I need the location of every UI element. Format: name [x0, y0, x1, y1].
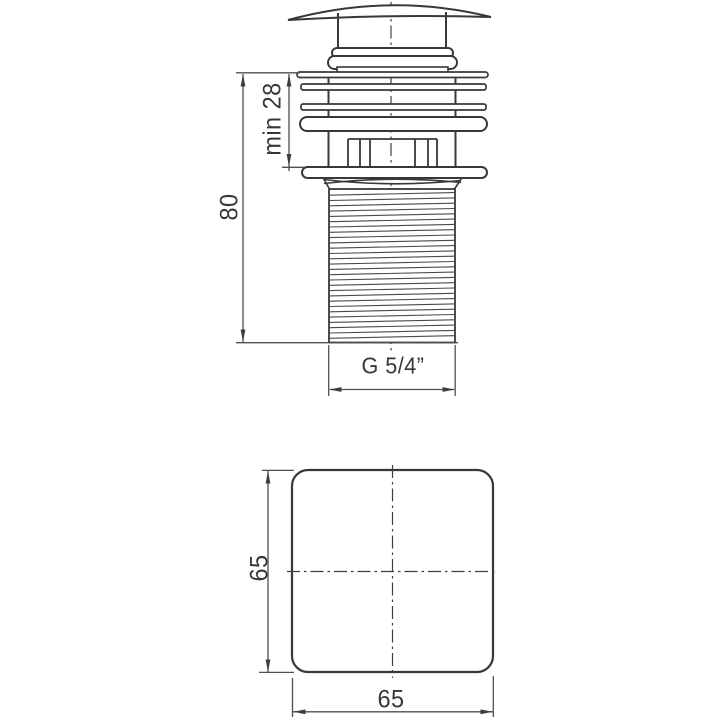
thread-body [329, 189, 455, 343]
front-view [236, 2, 491, 396]
cap-profile [288, 5, 491, 20]
flange-disc-3 [301, 104, 486, 110]
clamp-mechanism [348, 139, 437, 167]
flange-disc-top [297, 72, 488, 78]
dim-label-65-side: 65 [248, 554, 273, 581]
dim-label-min-28: min 28 [261, 82, 286, 155]
dim-label-thread-size: G 5/4” [362, 355, 425, 378]
flange-disc-thick [300, 117, 487, 131]
plan-view [259, 465, 498, 717]
flange-disc-bottom [302, 167, 487, 178]
dim-label-65-width: 65 [377, 688, 404, 713]
thread-runout [324, 179, 462, 190]
flange-disc-2 [301, 84, 486, 90]
technical-drawing [0, 0, 720, 720]
drawing-canvas: min 28 80 G 5/4” 65 65 [0, 0, 720, 720]
dim-label-80: 80 [218, 193, 243, 220]
